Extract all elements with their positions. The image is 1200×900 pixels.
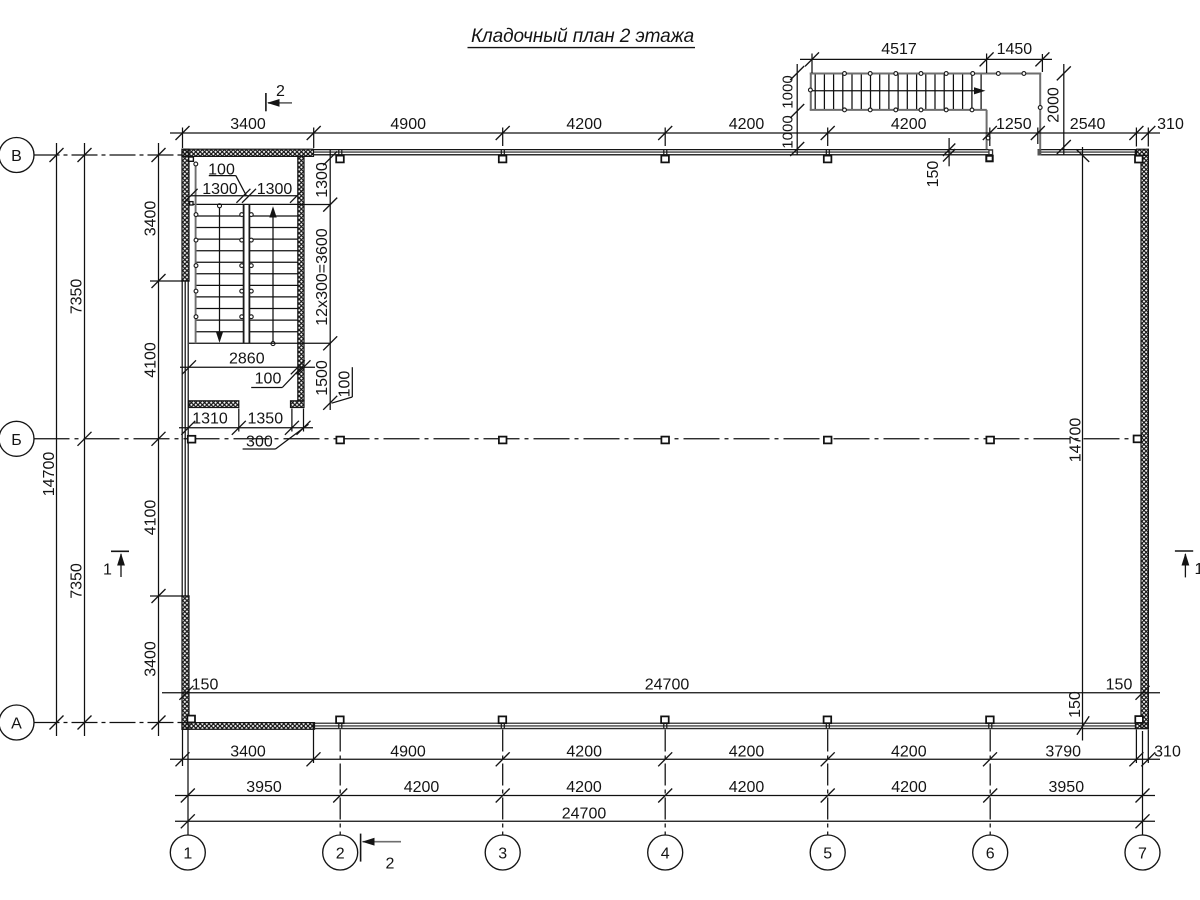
svg-text:3950: 3950 (1049, 779, 1085, 796)
svg-text:1350: 1350 (248, 411, 284, 428)
svg-text:4900: 4900 (390, 744, 426, 761)
svg-text:2000: 2000 (1046, 87, 1063, 123)
svg-text:3400: 3400 (230, 744, 266, 761)
svg-text:1: 1 (183, 846, 192, 863)
svg-text:150: 150 (1106, 677, 1133, 694)
svg-text:1300: 1300 (202, 181, 238, 198)
svg-text:1450: 1450 (997, 41, 1033, 58)
svg-text:2860: 2860 (229, 351, 265, 368)
svg-text:150: 150 (192, 677, 219, 694)
svg-text:2: 2 (386, 856, 395, 873)
svg-text:1310: 1310 (192, 411, 228, 428)
svg-text:4200: 4200 (566, 116, 602, 133)
svg-text:1: 1 (1195, 561, 1200, 578)
svg-text:3400: 3400 (143, 201, 160, 237)
svg-text:3400: 3400 (230, 116, 266, 133)
svg-text:1300: 1300 (257, 181, 293, 198)
svg-text:1000: 1000 (780, 115, 797, 148)
svg-text:В: В (11, 148, 22, 165)
svg-text:100: 100 (337, 371, 354, 398)
svg-text:4200: 4200 (404, 779, 440, 796)
svg-text:1250: 1250 (996, 116, 1032, 133)
svg-text:1000: 1000 (780, 75, 797, 108)
svg-text:2540: 2540 (1070, 116, 1106, 133)
svg-text:Кладочный план 2 этажа: Кладочный план 2 этажа (471, 26, 694, 47)
svg-text:5: 5 (823, 846, 832, 863)
svg-text:1: 1 (103, 562, 112, 579)
svg-text:300: 300 (246, 434, 273, 451)
svg-text:24700: 24700 (562, 806, 607, 823)
svg-text:100: 100 (255, 371, 282, 388)
svg-text:4200: 4200 (729, 116, 765, 133)
svg-text:310: 310 (1154, 744, 1181, 761)
svg-text:2: 2 (336, 846, 345, 863)
svg-text:А: А (11, 716, 22, 733)
svg-text:3400: 3400 (143, 641, 160, 677)
svg-text:150: 150 (1067, 691, 1084, 718)
svg-text:4100: 4100 (143, 342, 160, 378)
svg-text:4900: 4900 (390, 116, 426, 133)
svg-text:3: 3 (498, 846, 507, 863)
svg-text:4100: 4100 (143, 500, 160, 536)
svg-text:4200: 4200 (729, 779, 765, 796)
svg-text:4517: 4517 (881, 41, 917, 58)
svg-text:14700: 14700 (1068, 418, 1085, 463)
svg-text:7350: 7350 (69, 279, 86, 315)
svg-text:3950: 3950 (246, 779, 282, 796)
svg-text:4200: 4200 (729, 744, 765, 761)
svg-text:14700: 14700 (41, 452, 58, 497)
svg-text:3790: 3790 (1045, 744, 1081, 761)
svg-text:4200: 4200 (891, 116, 927, 133)
svg-text:12х300=3600: 12х300=3600 (314, 228, 331, 326)
svg-text:24700: 24700 (645, 677, 690, 694)
svg-text:2: 2 (276, 83, 285, 100)
svg-text:4200: 4200 (566, 779, 602, 796)
svg-text:310: 310 (1157, 116, 1184, 133)
svg-text:Б: Б (11, 432, 22, 449)
svg-text:4: 4 (661, 846, 670, 863)
svg-text:4200: 4200 (566, 744, 602, 761)
svg-text:4200: 4200 (891, 779, 927, 796)
svg-text:7350: 7350 (69, 563, 86, 599)
svg-text:150: 150 (925, 161, 942, 188)
svg-text:1500: 1500 (314, 360, 331, 396)
svg-text:6: 6 (986, 846, 995, 863)
svg-text:1300: 1300 (314, 162, 331, 198)
svg-text:7: 7 (1138, 846, 1147, 863)
svg-text:4200: 4200 (891, 744, 927, 761)
